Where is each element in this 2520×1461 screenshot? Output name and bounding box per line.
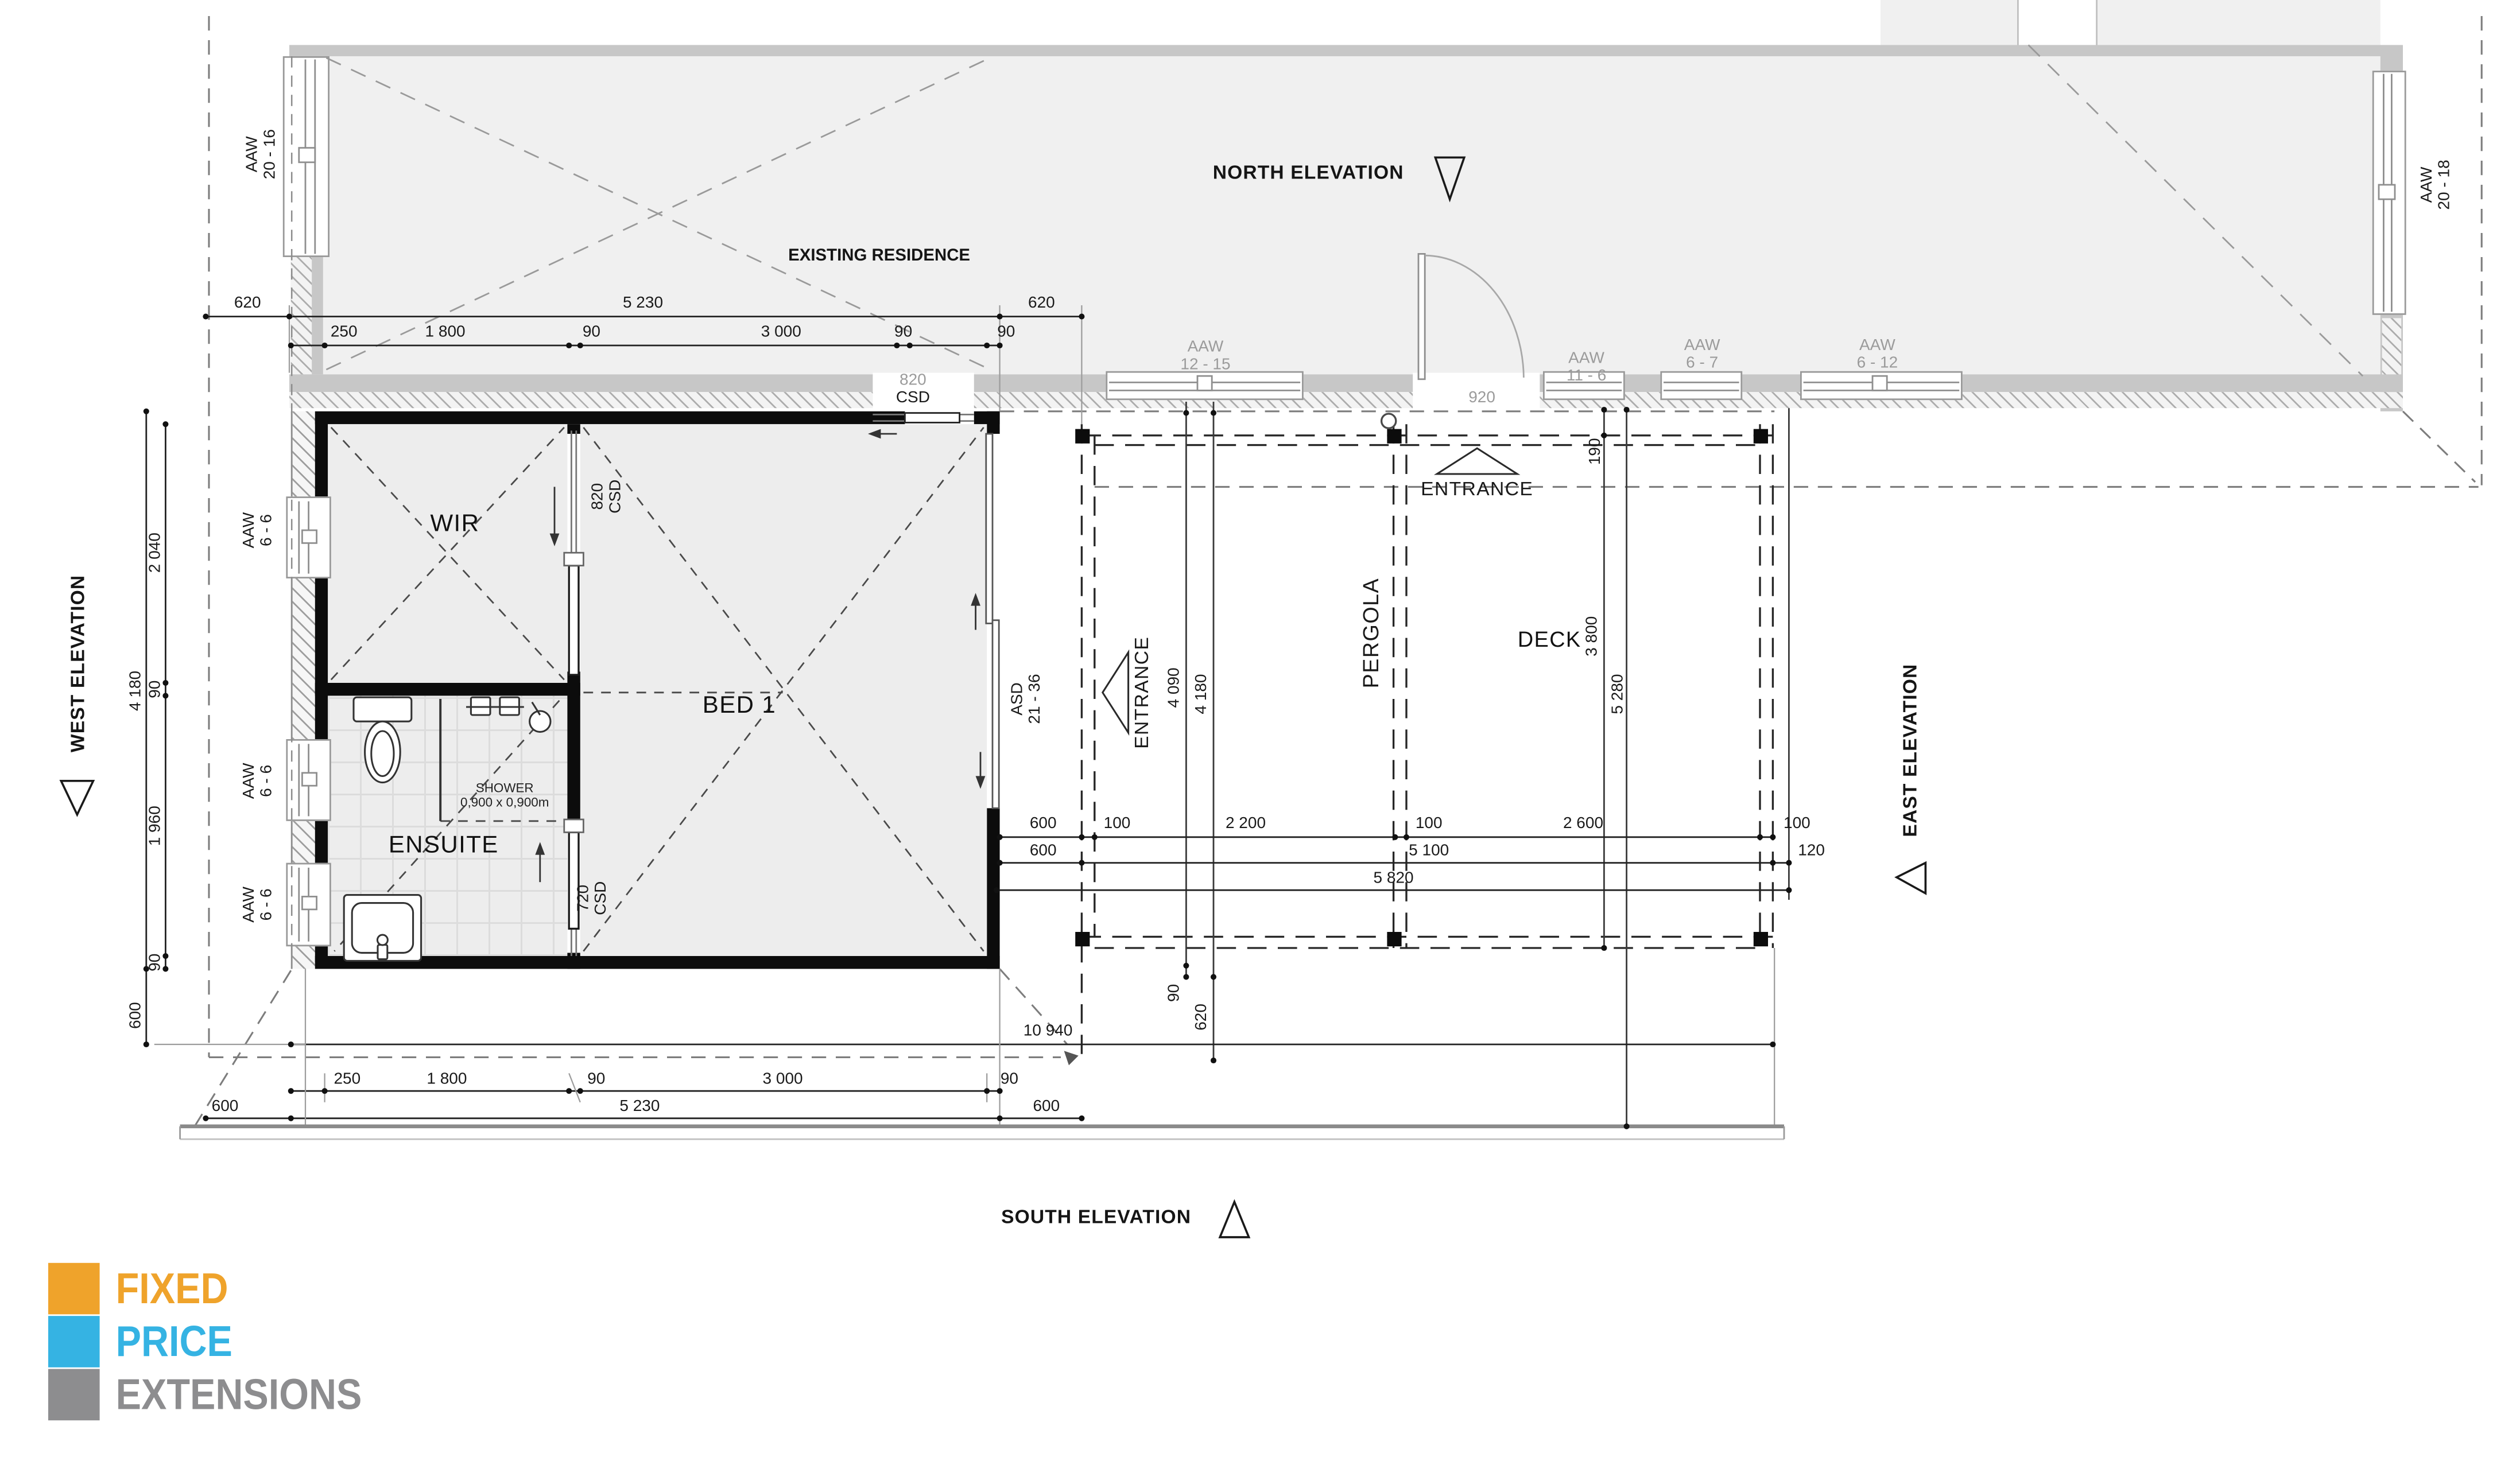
entrance-deck-arrow — [1437, 448, 1517, 474]
window-label: AAW 6 - 6 — [241, 512, 277, 549]
entrance-deck-label: ENTRANCE — [1421, 479, 1533, 501]
logo-word-price: PRICE — [116, 1318, 232, 1367]
dim-label: 620 — [1193, 1004, 1211, 1031]
dim-label: 90 — [147, 681, 165, 698]
shower-label: SHOWER 0,900 x 0,900m — [460, 783, 549, 811]
window-label: AAW 11 - 6 — [1567, 350, 1607, 386]
dim-label: 2 600 — [1563, 815, 1603, 833]
window-label: AAW 20 - 18 — [2418, 160, 2455, 209]
north-elevation-marker — [1435, 157, 1464, 199]
ensuite-label: ENSUITE — [389, 833, 499, 860]
boundary-arrowhead — [1064, 1051, 1079, 1065]
south-elevation-title: SOUTH ELEVATION — [1001, 1207, 1191, 1229]
west-elevation-title: WEST ELEVATION — [68, 575, 90, 752]
dim-label: 4 180 — [1193, 674, 1211, 714]
dim-label: 4 090 — [1166, 667, 1184, 708]
dim-label: 920 — [1468, 390, 1495, 407]
dim-label: 100 — [1104, 815, 1131, 833]
window-label: AAW 6 - 6 — [241, 763, 277, 799]
door-label: 720 CSD — [575, 881, 611, 915]
window-label: AAW 12 - 15 — [1180, 339, 1230, 375]
window-label: AAW 20 - 16 — [244, 129, 280, 179]
dim-label: 90 — [894, 324, 912, 341]
csd-820-north — [868, 413, 974, 439]
window-label: AAW 6 - 7 — [1684, 337, 1720, 373]
dim-label: 5 280 — [1610, 674, 1627, 714]
dim-label: 5 230 — [619, 1098, 660, 1116]
window-label: AAW 6 - 12 — [1857, 337, 1898, 373]
door-label: 820 — [900, 372, 926, 390]
dim-label: 90 — [1001, 1071, 1018, 1089]
dim-label: 190 — [1587, 438, 1605, 465]
west-elevation-marker — [61, 781, 93, 815]
dim-label: 2 200 — [1226, 815, 1266, 833]
dim-label: 600 — [127, 1002, 145, 1029]
east-elevation-title: EAST ELEVATION — [1900, 664, 1922, 837]
dim-label: 600 — [1033, 1098, 1060, 1116]
logo-square-orange — [48, 1263, 100, 1315]
dim-label: 90 — [587, 1071, 605, 1089]
entrance-side-label: ENTRANCE — [1132, 636, 1154, 749]
door-label: 820 CSD — [590, 480, 626, 514]
dim-label: 90 — [147, 954, 165, 972]
logo-word-fixed: FIXED — [116, 1265, 228, 1315]
dim-label: 5 820 — [1374, 870, 1414, 888]
door-label: ASD 21 - 36 — [1009, 674, 1045, 724]
downpipe-symbol — [1382, 414, 1396, 428]
wir-label: WIR — [430, 512, 479, 539]
dim-label: 3 800 — [1584, 616, 1602, 656]
dim-label: 4 180 — [127, 671, 145, 711]
dim-label: 90 — [1166, 984, 1184, 1002]
window-label: AAW 6 - 6 — [241, 887, 277, 923]
dim-label: 5 100 — [1409, 842, 1449, 860]
dim-label: 620 — [234, 295, 261, 313]
dim-label: 600 — [1030, 815, 1057, 833]
logo-square-gray — [48, 1369, 100, 1421]
north-elevation-title: NORTH ELEVATION — [1213, 163, 1404, 185]
door-label: CSD — [896, 390, 930, 407]
toilet — [354, 697, 412, 782]
dim-label: 250 — [334, 1071, 360, 1089]
room-diagonals — [331, 428, 984, 951]
logo-word-extensions: EXTENSIONS — [116, 1370, 362, 1420]
logo-square-blue — [48, 1316, 100, 1367]
floor-plan-canvas: NORTH ELEVATION SOUTH ELEVATION EAST ELE… — [0, 0, 2520, 1461]
dim-label: 1 960 — [147, 806, 165, 846]
dim-label: 90 — [997, 324, 1015, 341]
dim-label: 1 800 — [427, 1071, 467, 1089]
entrance-side-arrow — [1103, 652, 1129, 733]
entry-door-920 — [1418, 254, 1523, 379]
bed1-label: BED 1 — [703, 693, 776, 720]
deck-label: DECK — [1518, 627, 1581, 651]
reference-lines — [1186, 402, 1789, 1126]
linework-layer — [0, 0, 2520, 1460]
dim-label: 3 000 — [763, 1071, 803, 1089]
dim-label: 3 000 — [761, 324, 801, 341]
south-elevation-marker — [1220, 1202, 1249, 1237]
asd-21-36-door — [971, 434, 999, 808]
east-elevation-marker — [1897, 863, 1925, 893]
dim-label: 2 040 — [147, 533, 165, 573]
dim-label: 90 — [583, 324, 600, 341]
dim-label: 600 — [1030, 842, 1057, 860]
existing-extent-diagonals — [326, 45, 2363, 376]
site-ground-lines — [180, 1126, 1784, 1139]
dim-label: 5 230 — [623, 295, 663, 313]
csd-820-partition — [550, 430, 584, 675]
vanity-basin — [344, 895, 421, 961]
dim-label: 100 — [1416, 815, 1443, 833]
pergola-label: PERGOLA — [1359, 578, 1383, 689]
existing-residence-label: EXISTING RESIDENCE — [788, 248, 970, 267]
dim-label: 100 — [1784, 815, 1810, 833]
dim-label: 250 — [331, 324, 358, 341]
dim-label: 600 — [212, 1098, 239, 1116]
dim-label: 620 — [1028, 295, 1055, 313]
dim-label: 1 800 — [425, 324, 466, 341]
dim-label: 120 — [1798, 842, 1825, 860]
dim-label: 10 940 — [1023, 1023, 1073, 1040]
